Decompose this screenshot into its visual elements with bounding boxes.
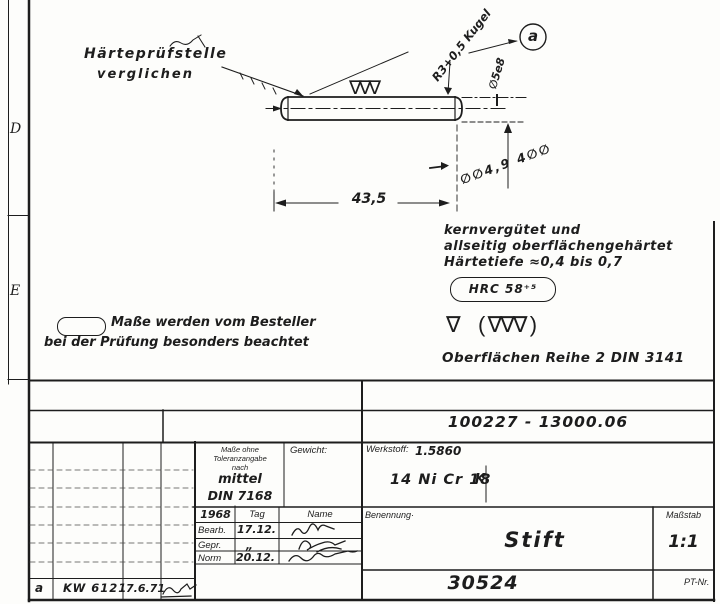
inspection-oval-symbol	[57, 317, 106, 336]
pin-surface-finish-icon: ∇∇∇	[349, 79, 378, 98]
material-number: 1.5860	[415, 445, 461, 457]
surface-symbol-group-icon: ( ∇∇∇ )	[478, 314, 535, 336]
signature-gepr	[299, 541, 345, 552]
approval-col-name: Name	[280, 510, 360, 520]
detail-marker-a: a	[520, 29, 546, 44]
pt-number-label: PT-Nr.	[684, 578, 709, 587]
inspection-note-line2: bei der Prüfung besonders beachtet	[44, 336, 309, 349]
signature-bearb	[292, 524, 334, 535]
weight-label: Gewicht:	[290, 446, 327, 456]
material-label: Werkstoff:	[366, 445, 409, 455]
approval-col-date: Tag	[236, 510, 278, 520]
signature-norm	[289, 551, 357, 561]
tolerance-value-mittel: mittel	[196, 473, 284, 486]
tolerance-label-line3: nach	[196, 464, 284, 472]
approval-row-bearb-label: Bearb.	[198, 526, 226, 536]
scale-value: 1:1	[653, 534, 714, 551]
hardness-test-note-line2: verglichen	[97, 68, 194, 81]
scale-label: Maßstab	[655, 511, 712, 520]
surface-symbol-single-icon: ∇	[446, 314, 461, 336]
tolerance-label-line2: Toleranzangabe	[196, 455, 284, 463]
tolerance-label-line1: Maße ohne	[196, 446, 284, 454]
heat-treatment-note-line2: allseitig oberflächengehärtet	[444, 240, 673, 253]
tolerance-value-din: DIN 7168	[196, 490, 284, 503]
margin-row-letter-d: D	[10, 122, 21, 136]
revision-date: 7.6.71	[126, 583, 165, 594]
hardness-test-note-line1: Härteprüfstelle	[84, 47, 227, 61]
revision-letter: a	[35, 582, 43, 594]
approval-row-bearb-date: 17.12.	[237, 524, 276, 535]
revision-doc: KW 6121	[63, 583, 127, 595]
approval-row-norm-date: 20.12.	[236, 552, 275, 563]
technical-drawing-sheet: Härteprüfstelle verglichen R3+0,5 Kugel …	[0, 0, 720, 604]
part-number: 30524	[368, 574, 598, 593]
heat-treatment-note-line1: kernvergütet und	[444, 224, 581, 237]
approval-row-norm-label: Norm	[198, 554, 221, 564]
surface-series-caption: Oberflächen Reihe 2 DIN 3141	[442, 352, 685, 366]
document-number: 100227 - 13000.06	[372, 415, 704, 431]
approval-row-gepr-date: „	[246, 540, 253, 551]
approval-year: 1968	[197, 509, 234, 520]
material-extra-mark: K	[475, 473, 485, 486]
margin-row-letter-e: E	[10, 284, 20, 298]
length-dimension: 43,5	[340, 192, 398, 206]
approval-row-gepr-label: Gepr.	[198, 541, 221, 551]
part-name-label: Benennung·	[365, 511, 414, 520]
heat-treatment-note-line3: Härtetiefe ≈0,4 bis 0,7	[444, 256, 623, 269]
signature-revision	[161, 584, 196, 597]
inspection-note-line1: Maße werden vom Besteller	[111, 316, 316, 329]
hrc-oval: HRC 58⁺⁵	[450, 277, 556, 302]
hrc-hardness-value: HRC 58⁺⁵	[451, 283, 555, 295]
part-name-value: Stift	[420, 530, 650, 551]
